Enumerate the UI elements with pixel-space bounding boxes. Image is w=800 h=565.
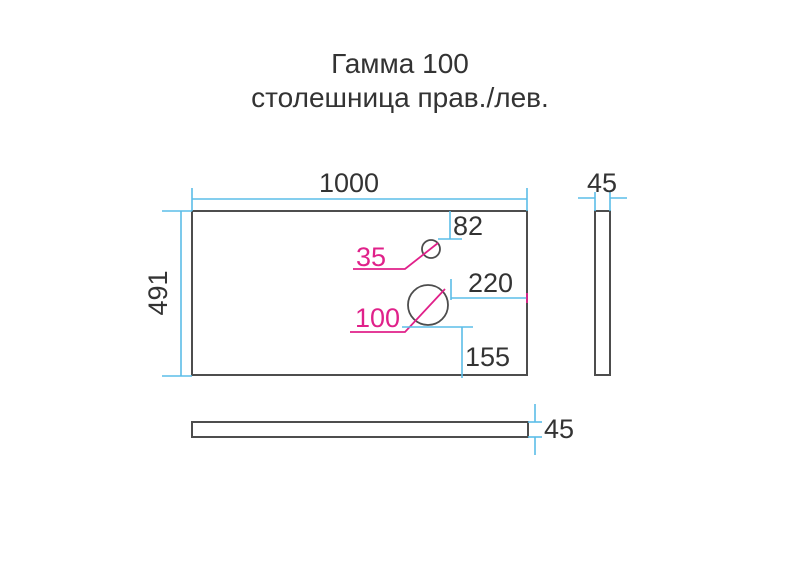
dim-side-45-value: 45 — [587, 168, 617, 198]
title-part-name: столешница прав./лев. — [251, 82, 549, 113]
dim-220-value: 220 — [468, 268, 513, 298]
dim-small-hole-top-offset: 82 — [438, 211, 483, 241]
dim-large-hole-right-offset: 220 — [451, 268, 527, 303]
dim-155-value: 155 — [465, 342, 510, 372]
dim-side-thickness: 45 — [578, 168, 627, 211]
dim-depth: 491 — [143, 211, 192, 376]
dim-large-hole-bottom-offset: 155 — [402, 327, 510, 378]
dim-front-45-value: 45 — [544, 414, 574, 444]
dim-width-value: 1000 — [319, 168, 379, 198]
title-model-name: Гамма 100 — [331, 48, 469, 79]
side-view-outline — [595, 211, 610, 375]
front-view-outline — [192, 422, 528, 437]
drawing-svg: Гамма 100 столешница прав./лев. 1000 491 — [0, 0, 800, 565]
drawing-title: Гамма 100 столешница прав./лев. — [251, 48, 549, 113]
front-view: 45 — [192, 404, 574, 455]
dim-depth-value: 491 — [143, 270, 173, 315]
technical-drawing-page: Гамма 100 столешница прав./лев. 1000 491 — [0, 0, 800, 565]
dim-82-value: 82 — [453, 211, 483, 241]
dim-100-value: 100 — [355, 303, 400, 333]
dim-front-thickness: 45 — [528, 404, 574, 455]
dim-width: 1000 — [192, 168, 527, 211]
side-view: 45 — [578, 168, 627, 375]
dim-35-value: 35 — [356, 242, 386, 272]
top-view: 1000 491 82 35 — [143, 168, 527, 378]
